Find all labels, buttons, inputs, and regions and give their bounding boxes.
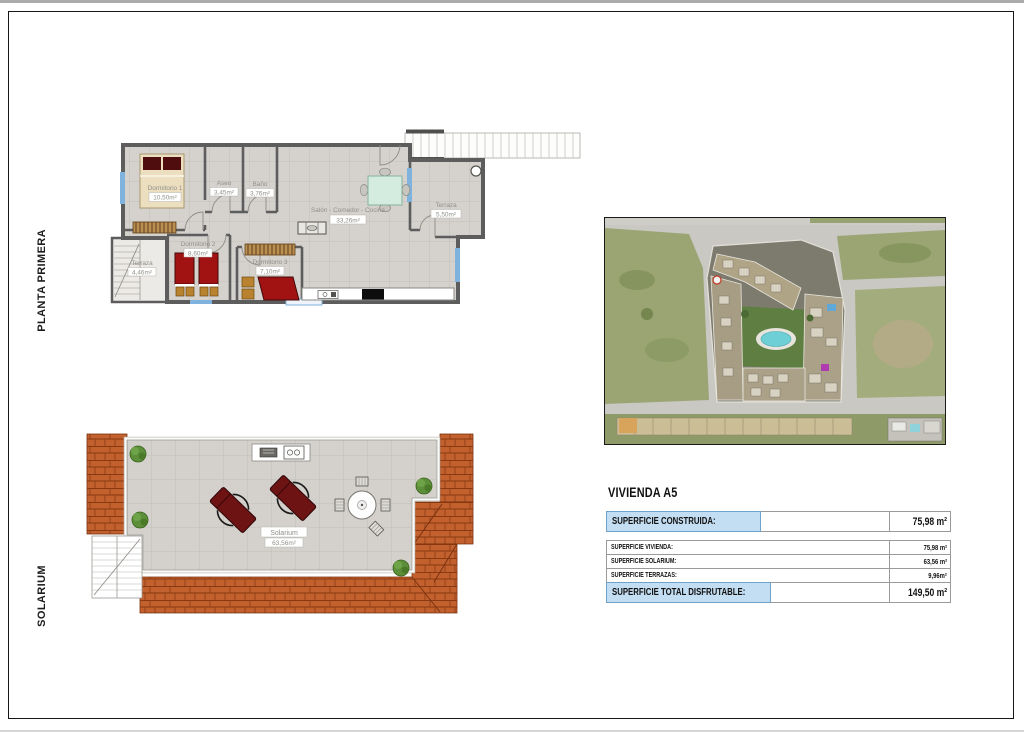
row-label-cell: SUPERFICIE TOTAL DISFRUTABLE: [606,582,771,603]
site-marker [713,276,721,284]
kitchen-counter [302,288,454,300]
table-row-construida: SUPERFICIE CONSTRUIDA: 75,98 m² [606,511,951,532]
svg-text:33,26m²: 33,26m² [336,217,359,224]
floor-label-planta-primera: PLANTA PRIMERA [36,229,48,332]
wardrobe-dormitorio1 [133,222,176,233]
access-walkway [405,130,580,162]
row-label-cell: SUPERFICIE SOLARIUM: [606,554,886,569]
svg-text:Dormitorio 3: Dormitorio 3 [253,259,288,266]
solarium-label: Solarium 63,56m² [261,527,307,547]
svg-text:7,10m²: 7,10m² [260,268,280,275]
svg-text:3,45m²: 3,45m² [214,189,234,196]
row-label-cell: SUPERFICIE VIVIENDA: [606,540,886,555]
table-row-terrazas: SUPERFICIE TERRAZAS: 9,96m² [606,568,951,583]
svg-text:4,46m²: 4,46m² [132,269,152,276]
svg-text:10,50m²: 10,50m² [153,195,176,202]
svg-text:Salón - Comedor - Cocina: Salón - Comedor - Cocina [311,207,385,214]
bbq-counter [252,444,310,461]
row-value-cell: 149,50 m² [889,583,950,602]
aerial-site-photo [604,217,946,445]
svg-text:Terraza: Terraza [131,260,153,267]
svg-text:3,76m²: 3,76m² [250,190,270,197]
row-value-cell: 63,56 m² [889,555,950,568]
window-salon [455,248,460,282]
solarium-stairs [92,536,142,598]
dwelling-title-text: VIVIENDA A5 [608,484,677,500]
floor-label-solarium: SOLARIUM [36,565,48,627]
solarium-plan: Solarium 63,56m² [80,432,500,632]
residential-complex [707,240,845,402]
svg-text:Aseo: Aseo [217,180,232,187]
aerial-graphic [605,218,945,444]
row-value-cell: 75,98 m² [889,541,950,554]
svg-text:Baño: Baño [253,181,268,188]
svg-text:Terraza: Terraza [435,202,457,209]
building-west [711,276,743,400]
sheet-edge [0,0,1024,3]
svg-text:5,50m²: 5,50m² [436,211,456,218]
table-row-vivienda: SUPERFICIE VIVIENDA: 75,98 m² [606,540,951,555]
row-value-cell: 75,98 m² [889,512,950,531]
dwelling-title: VIVIENDA A5 [608,484,697,500]
svg-text:8,60m²: 8,60m² [188,250,208,257]
wardrobe-dormitorio3 [245,244,295,255]
swimming-pool [761,332,791,347]
window-dormitorio2 [190,300,212,304]
terraza-table [471,166,481,176]
svg-text:Solarium: Solarium [270,530,298,537]
svg-text:Dormitorio 2: Dormitorio 2 [181,241,216,248]
info-panel: VIVIENDA A5 SUPERFICIE CONSTRUIDA: 75,98… [606,484,953,614]
row-label-cell: SUPERFICIE TERRAZAS: [606,568,886,583]
row-value-cell: 9,96m² [889,569,950,582]
floor-plan-planta-primera: Dormitorio 1 10,50m² Aseo 3,45m² Baño 3,… [90,122,590,337]
row-label-cell: SUPERFICIE CONSTRUIDA: [606,511,761,532]
table-row-solarium: SUPERFICIE SOLARIUM: 63,56 m² [606,554,951,569]
window-dormitorio1 [120,172,125,204]
svg-text:Dormitorio 1: Dormitorio 1 [148,185,183,192]
table-row-total-disfrutable: SUPERFICIE TOTAL DISFRUTABLE: 149,50 m² [606,582,951,603]
svg-text:63,56m²: 63,56m² [272,540,297,547]
plan-sheet: PLANTA PRIMERA SOLARIUM [0,0,1024,732]
salon-sideboard [298,222,326,234]
